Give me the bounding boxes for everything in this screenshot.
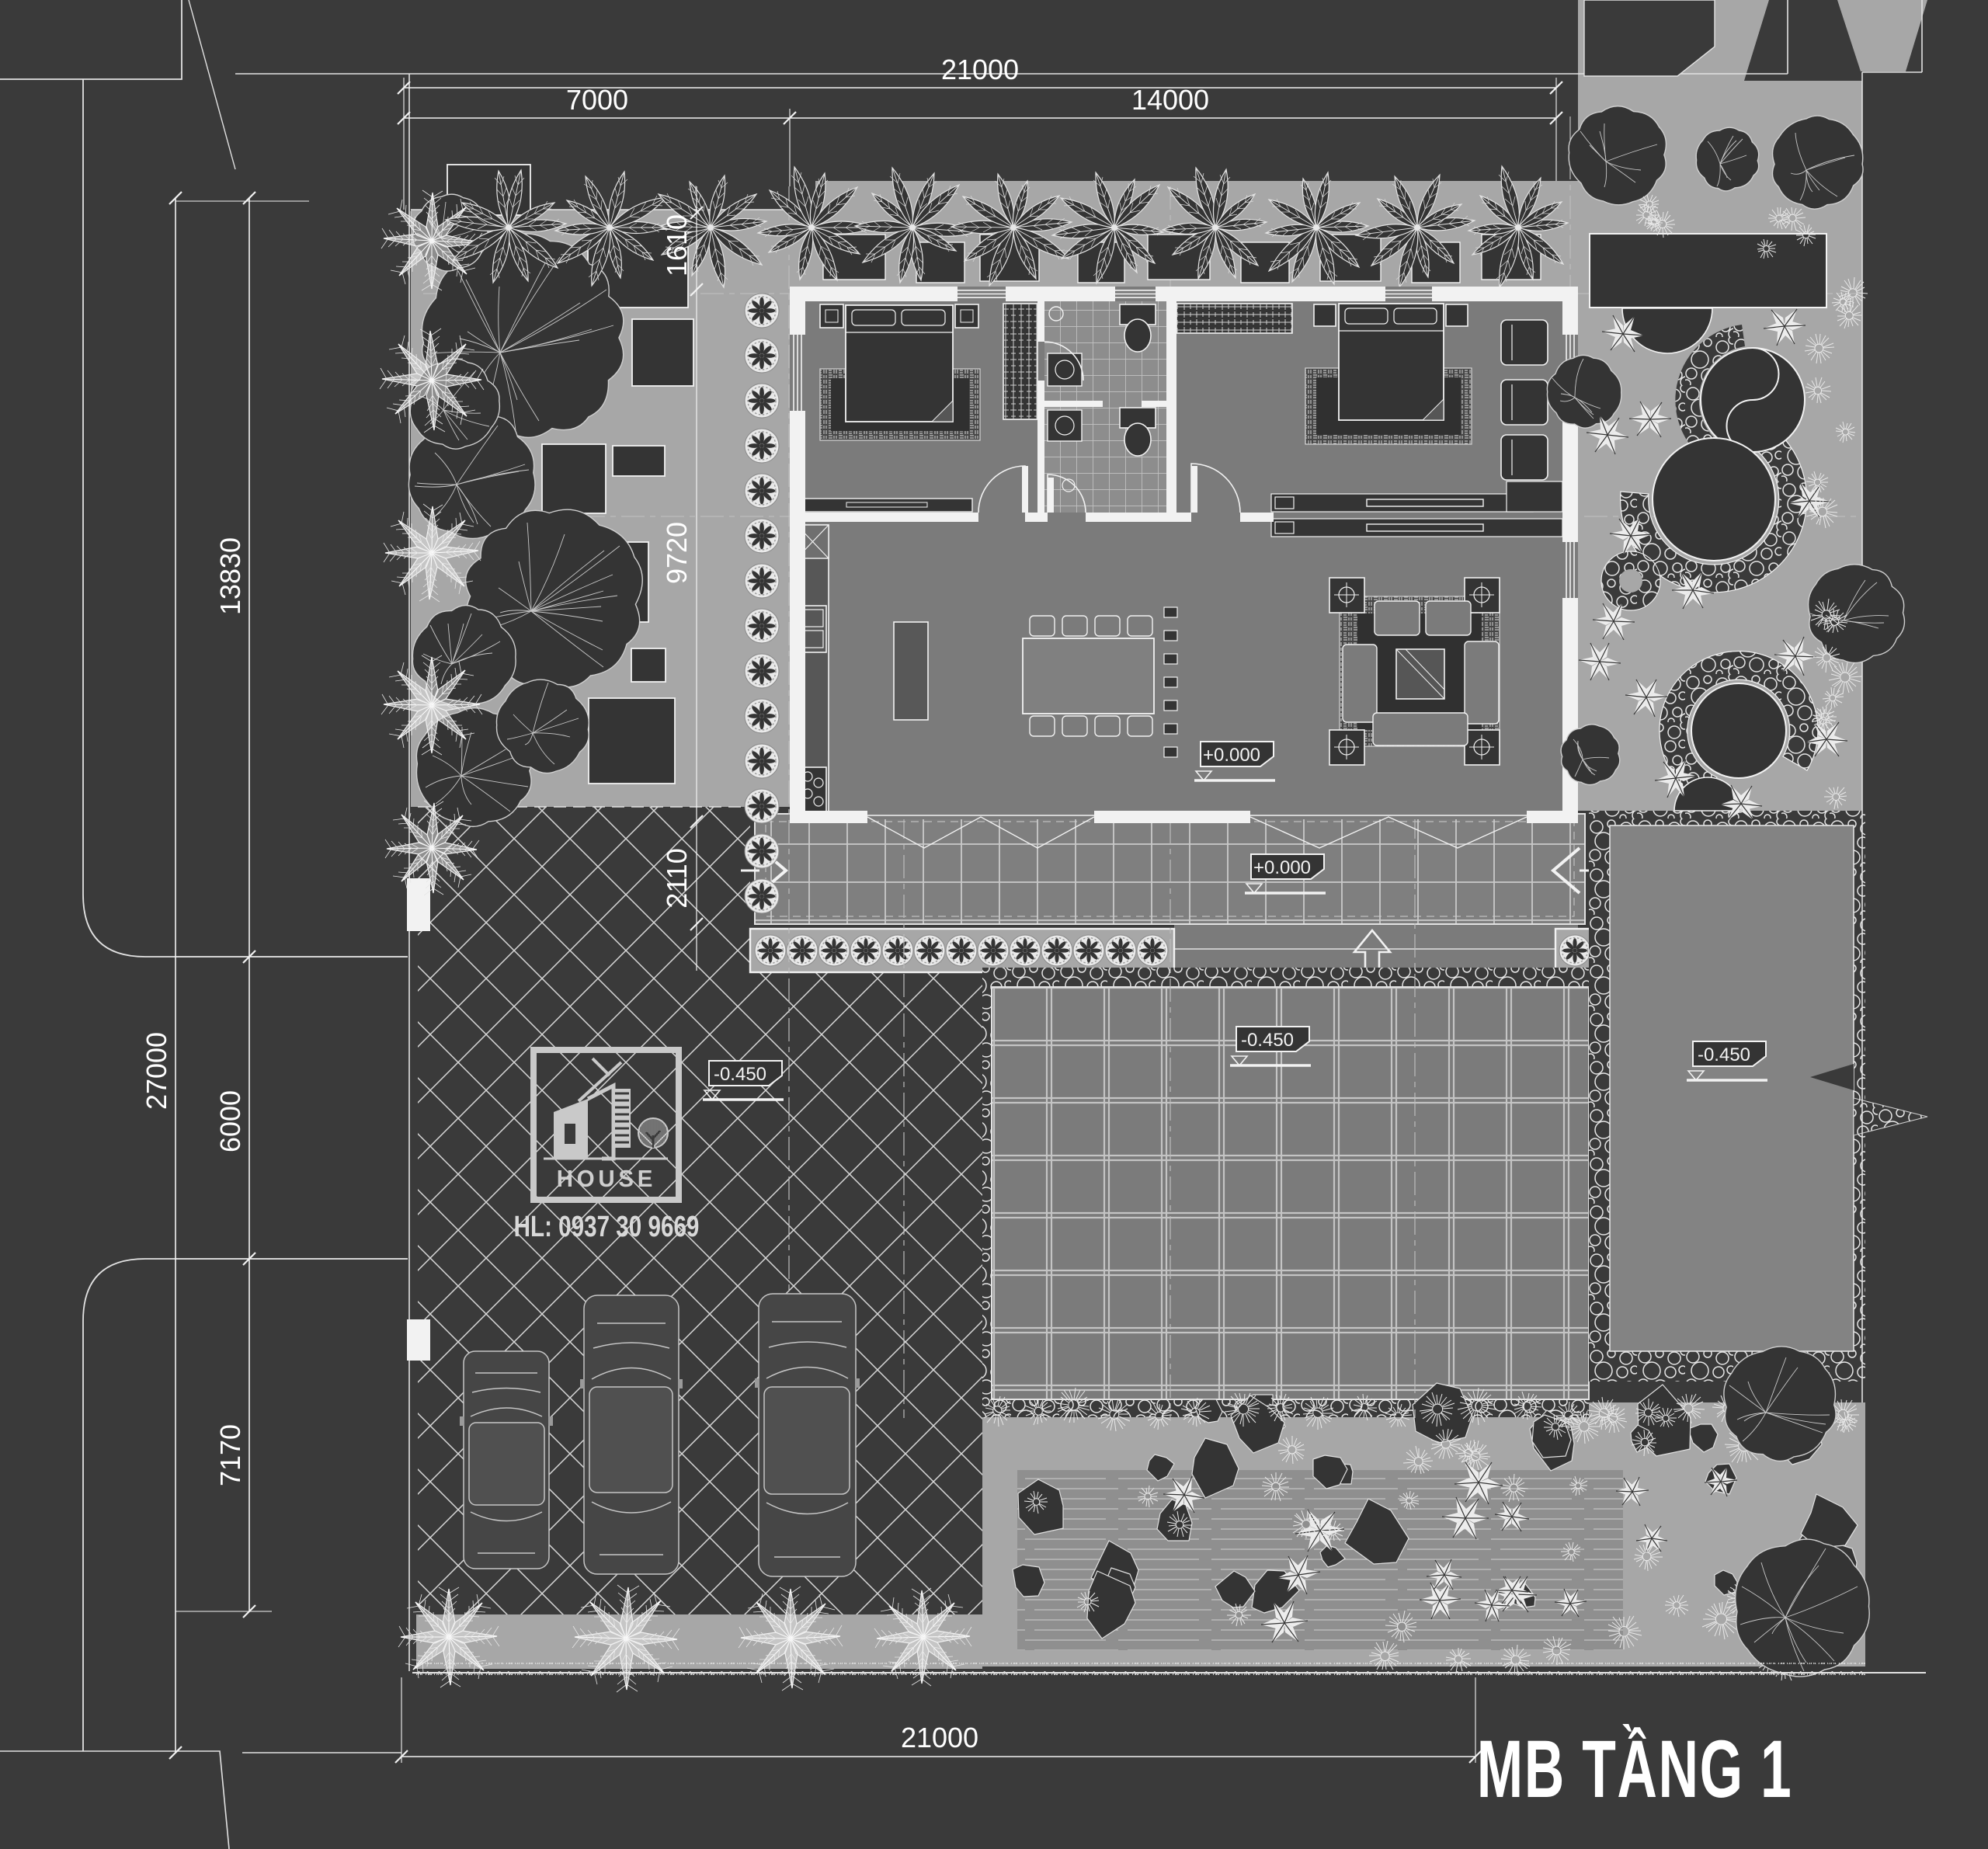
- svg-text:1610: 1610: [661, 214, 693, 276]
- svg-text:MB TẦNG 1: MB TẦNG 1: [1477, 1722, 1793, 1815]
- svg-text:2110: 2110: [661, 848, 693, 908]
- svg-text:7000: 7000: [566, 84, 628, 116]
- svg-text:-0.450: -0.450: [714, 1064, 766, 1085]
- svg-text:-0.450: -0.450: [1241, 1030, 1294, 1051]
- svg-text:14000: 14000: [1131, 84, 1209, 116]
- svg-text:9720: 9720: [661, 522, 693, 584]
- svg-text:21000: 21000: [901, 1722, 978, 1753]
- svg-text:HOUSE: HOUSE: [557, 1166, 656, 1192]
- svg-text:13830: 13830: [214, 537, 246, 615]
- svg-text:HL: 0937 30 9669: HL: 0937 30 9669: [514, 1211, 700, 1243]
- svg-text:21000: 21000: [941, 54, 1019, 85]
- svg-text:+0.000: +0.000: [1253, 857, 1311, 878]
- svg-text:6000: 6000: [214, 1090, 246, 1152]
- svg-text:27000: 27000: [141, 1032, 172, 1110]
- svg-text:-0.450: -0.450: [1698, 1044, 1750, 1065]
- svg-text:7170: 7170: [214, 1424, 246, 1486]
- svg-text:+0.000: +0.000: [1203, 745, 1260, 766]
